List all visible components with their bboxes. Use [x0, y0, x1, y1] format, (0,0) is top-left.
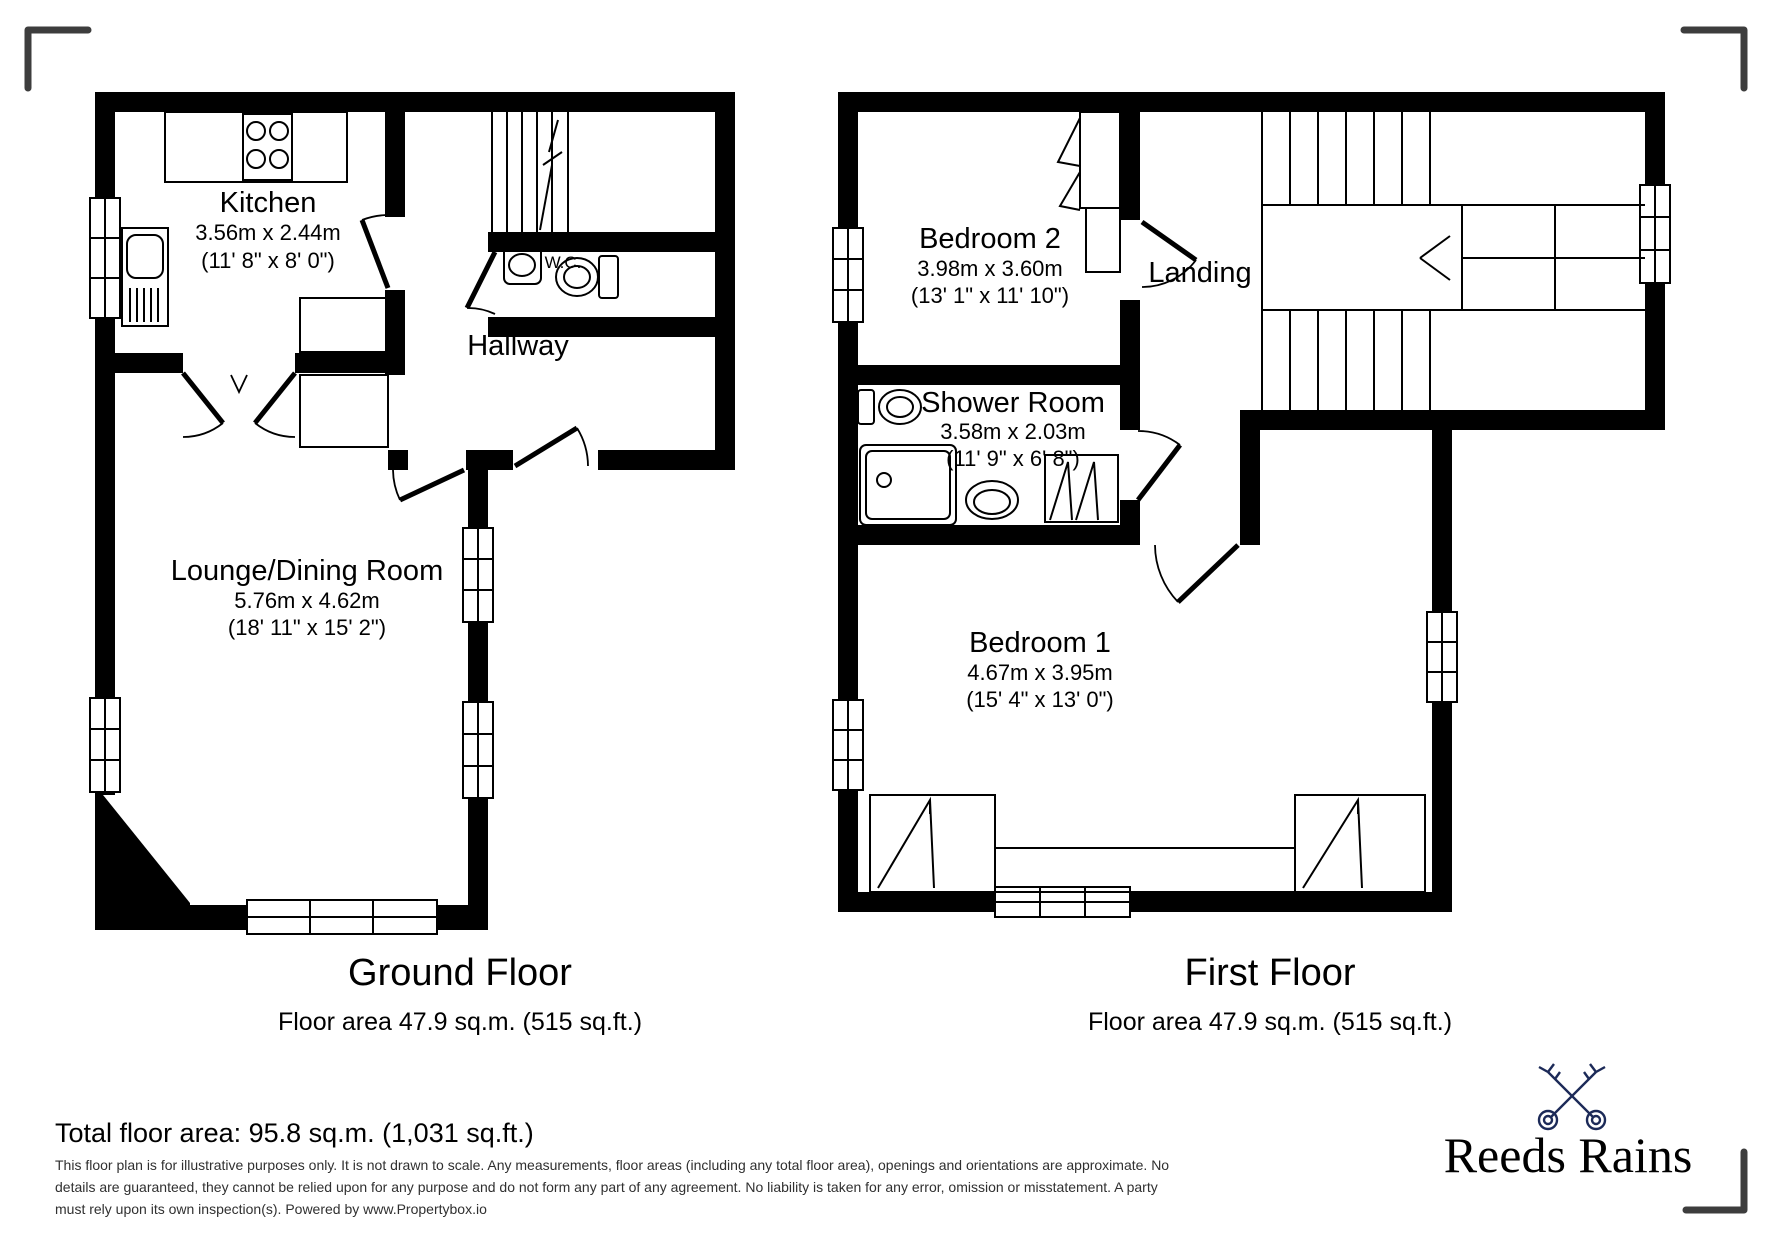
bedroom2-dim-metric: 3.98m x 3.60m [917, 256, 1063, 281]
window [833, 700, 863, 790]
bedroom1-dim-metric: 4.67m x 3.95m [967, 660, 1113, 685]
crossed-keys-icon [1539, 1064, 1605, 1129]
basin-icon [966, 481, 1018, 519]
first-floor-area: Floor area 47.9 sq.m. (515 sq.ft.) [1088, 1008, 1452, 1036]
toilet-icon [858, 390, 921, 424]
kitchen-label: Kitchen [220, 187, 317, 219]
first-floor-title: First Floor [1185, 952, 1356, 994]
ground-floor-walls [95, 92, 735, 930]
kitchen-double-doors [183, 373, 295, 437]
kitchen-counter-icon [165, 112, 347, 182]
window [90, 198, 120, 318]
wc-label: W.C. [545, 253, 582, 272]
shower-tray-icon [860, 445, 956, 525]
wardrobe [870, 795, 995, 892]
stairs-first [1262, 112, 1645, 430]
kitchen-dim-imperial: (11' 8" x 8' 0") [201, 248, 335, 273]
front-door [515, 428, 588, 466]
wardrobe [1058, 112, 1120, 272]
shower-door [1138, 431, 1180, 500]
lounge-dim-imperial: (18' 11" x 15' 2") [228, 615, 386, 640]
wardrobe [1295, 795, 1425, 892]
brand-logo: Reeds Rains [1444, 1064, 1693, 1183]
window [1427, 612, 1457, 702]
window [833, 228, 863, 322]
ground-floor-plan: Kitchen 3.56m x 2.44m (11' 8" x 8' 0") W… [90, 92, 735, 934]
shower-dim-metric: 3.58m x 2.03m [940, 419, 1086, 444]
stairs-ground [492, 112, 568, 232]
lounge-dim-metric: 5.76m x 4.62m [234, 588, 380, 613]
window [463, 528, 493, 622]
bedroom2-label: Bedroom 2 [919, 223, 1061, 255]
shower-label: Shower Room [921, 387, 1105, 419]
window [463, 702, 493, 798]
first-floor-walls [838, 92, 1665, 912]
first-floor-plan: Bedroom 2 3.98m x 3.60m (13' 1" x 11' 10… [833, 92, 1670, 917]
corner-bracket-top-right [1684, 30, 1744, 88]
bedroom1-door [1155, 545, 1238, 602]
disclaimer-line-2: details are guaranteed, they cannot be r… [55, 1179, 1158, 1195]
window [1640, 185, 1670, 283]
wc-door [467, 252, 495, 314]
total-floor-area: Total floor area: 95.8 sq.m. (1,031 sq.f… [55, 1118, 534, 1148]
shower-dim-imperial: (11' 9" x 6' 8") [946, 446, 1080, 471]
disclaimer-line-1: This floor plan is for illustrative purp… [55, 1157, 1169, 1173]
brand-name: Reeds Rains [1444, 1127, 1693, 1183]
lounge-door [393, 470, 464, 500]
bedroom2-dim-imperial: (13' 1" x 11' 10") [911, 283, 1069, 308]
hallway-label: Hallway [467, 330, 569, 362]
ground-floor-area: Floor area 47.9 sq.m. (515 sq.ft.) [278, 1008, 642, 1036]
floorplan-page: Kitchen 3.56m x 2.44m (11' 8" x 8' 0") W… [0, 0, 1771, 1239]
wardrobe-run [995, 848, 1295, 892]
kitchen-dim-metric: 3.56m x 2.44m [195, 220, 341, 245]
ground-floor-title: Ground Floor [348, 952, 572, 994]
disclaimer-line-3: must rely upon its own inspection(s). Po… [55, 1201, 487, 1217]
corner-bracket-bottom-right [1686, 1152, 1744, 1210]
bedroom1-label: Bedroom 1 [969, 627, 1111, 659]
bedroom1-dim-imperial: (15' 4" x 13' 0") [966, 687, 1114, 712]
window [90, 698, 120, 792]
window [247, 900, 437, 934]
kitchen-door [362, 215, 388, 288]
lounge-label: Lounge/Dining Room [171, 555, 443, 587]
landing-label: Landing [1148, 257, 1251, 289]
sink-icon [122, 228, 168, 326]
corner-bracket-top-left [28, 30, 88, 88]
